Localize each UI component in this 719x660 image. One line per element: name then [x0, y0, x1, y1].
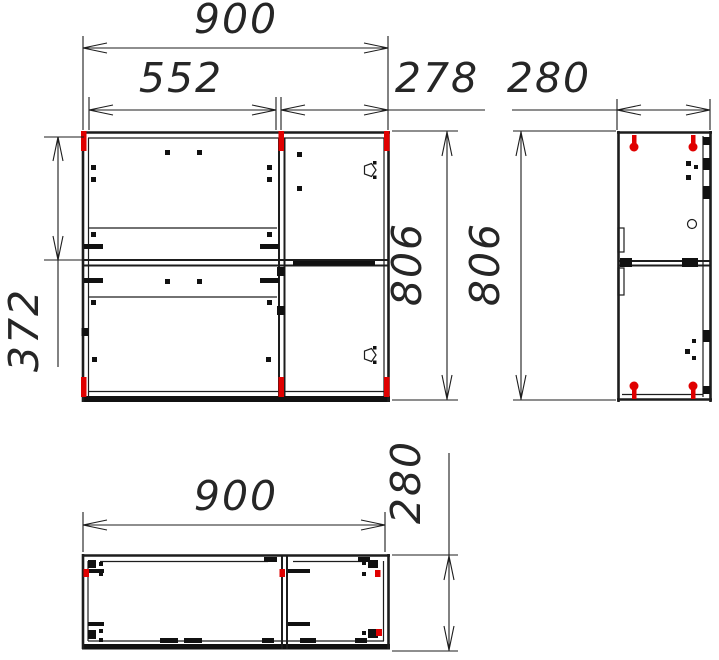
side-view	[617, 131, 712, 402]
dim-front-left-section: 552	[89, 54, 276, 130]
front-carcass	[82, 131, 390, 402]
dim-front-right-section: 278	[281, 54, 485, 130]
dim-label-280-bottom: 280	[382, 440, 430, 524]
plan-carcass	[82, 554, 390, 650]
dim-label-278: 278	[395, 54, 479, 102]
side-carcass	[617, 131, 712, 402]
dim-plan-depth: 280	[382, 440, 458, 651]
dim-label-806-left: 806	[383, 222, 431, 306]
front-interior-left-section	[82, 150, 286, 362]
bottom-view	[82, 554, 390, 650]
drawing-sheet: 900 552 278 280 806	[0, 0, 719, 660]
dim-label-280-top: 280	[507, 54, 591, 102]
plan-interior-details	[88, 560, 378, 643]
dim-plan-width: 900	[83, 472, 385, 552]
dim-front-height: 806	[383, 131, 458, 400]
dim-top-to-divider: 372	[0, 137, 84, 372]
cabinet-drawing: 900 552 278 280 806	[0, 0, 719, 660]
front-view	[81, 131, 390, 402]
dim-label-900-top: 900	[194, 0, 278, 43]
front-interior-right-section	[293, 152, 377, 364]
dim-label-806-right: 806	[461, 222, 509, 306]
dim-side-depth: 280	[507, 54, 710, 130]
dimension-annotations: 900 552 278 280 806	[0, 0, 710, 651]
dim-side-height: 806	[461, 131, 616, 400]
plan-fastener-marks	[84, 569, 383, 636]
hinge-icon	[365, 161, 377, 179]
dim-label-372: 372	[0, 288, 48, 372]
hinge-icon	[365, 346, 377, 364]
dim-label-552: 552	[139, 54, 223, 102]
dim-label-900-bottom: 900	[194, 472, 278, 520]
